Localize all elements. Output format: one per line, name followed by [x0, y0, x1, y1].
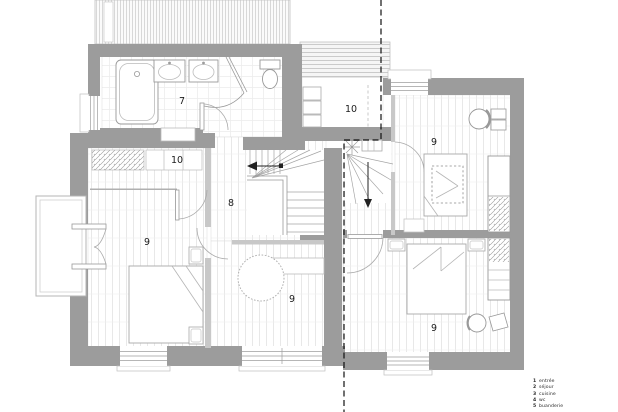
room-label-storage: 10 [345, 104, 357, 115]
window-bedroom-bottom-right [384, 352, 432, 375]
armchair [469, 109, 490, 129]
wardrobe [488, 156, 510, 232]
room-label-bedroom-left: 9 [144, 237, 150, 248]
window-bedroom-left [117, 346, 170, 371]
legend-item-label: entrée [539, 379, 555, 384]
bathtub [116, 60, 158, 124]
room-label-bathroom: 7 [179, 96, 185, 107]
window-bedroom-top-right [388, 70, 431, 95]
bathroom-cabinet [161, 128, 195, 141]
room-label-bedroom-bottom-right: 9 [431, 323, 437, 334]
wardrobe-rail [92, 150, 144, 170]
round-chair [238, 255, 284, 301]
room-label-hall: 8 [228, 198, 234, 209]
room-label-bedroom-middle: 9 [289, 294, 295, 305]
legend-item-label: cuisine [539, 392, 556, 397]
room-label-bedroom-top-right: 9 [431, 137, 437, 148]
legend-item: 5buanderie [533, 404, 613, 410]
nightstand [468, 239, 485, 251]
roof-right [300, 42, 390, 77]
nightstand [189, 327, 203, 344]
legend: 1entrée 2séjour 3cuisine 4wc 5buanderie [533, 379, 613, 410]
nightstand [388, 239, 405, 251]
washbasin [154, 60, 185, 82]
floor-plan: 7 8 9 9 9 9 10 10 1entrée 2séjour 3cuisi… [0, 0, 618, 412]
legend-item-label: wc [539, 398, 545, 403]
balcony [36, 196, 86, 296]
plant [344, 139, 360, 155]
landing-shelf [362, 140, 382, 151]
legend-item-label: séjour [539, 385, 554, 390]
bed [424, 154, 467, 216]
stairs-main [247, 150, 324, 235]
window-bedroom-middle [239, 346, 325, 371]
floor-plan-drawing: 7 8 9 9 9 9 10 10 [0, 0, 618, 412]
armchair [468, 314, 486, 332]
roof-left [95, 0, 290, 44]
bed [407, 244, 466, 314]
room-label-dressing: 10 [171, 155, 183, 166]
wardrobe [488, 238, 510, 300]
window-bathroom-left [80, 94, 100, 132]
rug [404, 219, 424, 232]
legend-item-label: buanderie [539, 404, 563, 409]
nightstand [189, 247, 203, 264]
washbasin [189, 60, 218, 82]
